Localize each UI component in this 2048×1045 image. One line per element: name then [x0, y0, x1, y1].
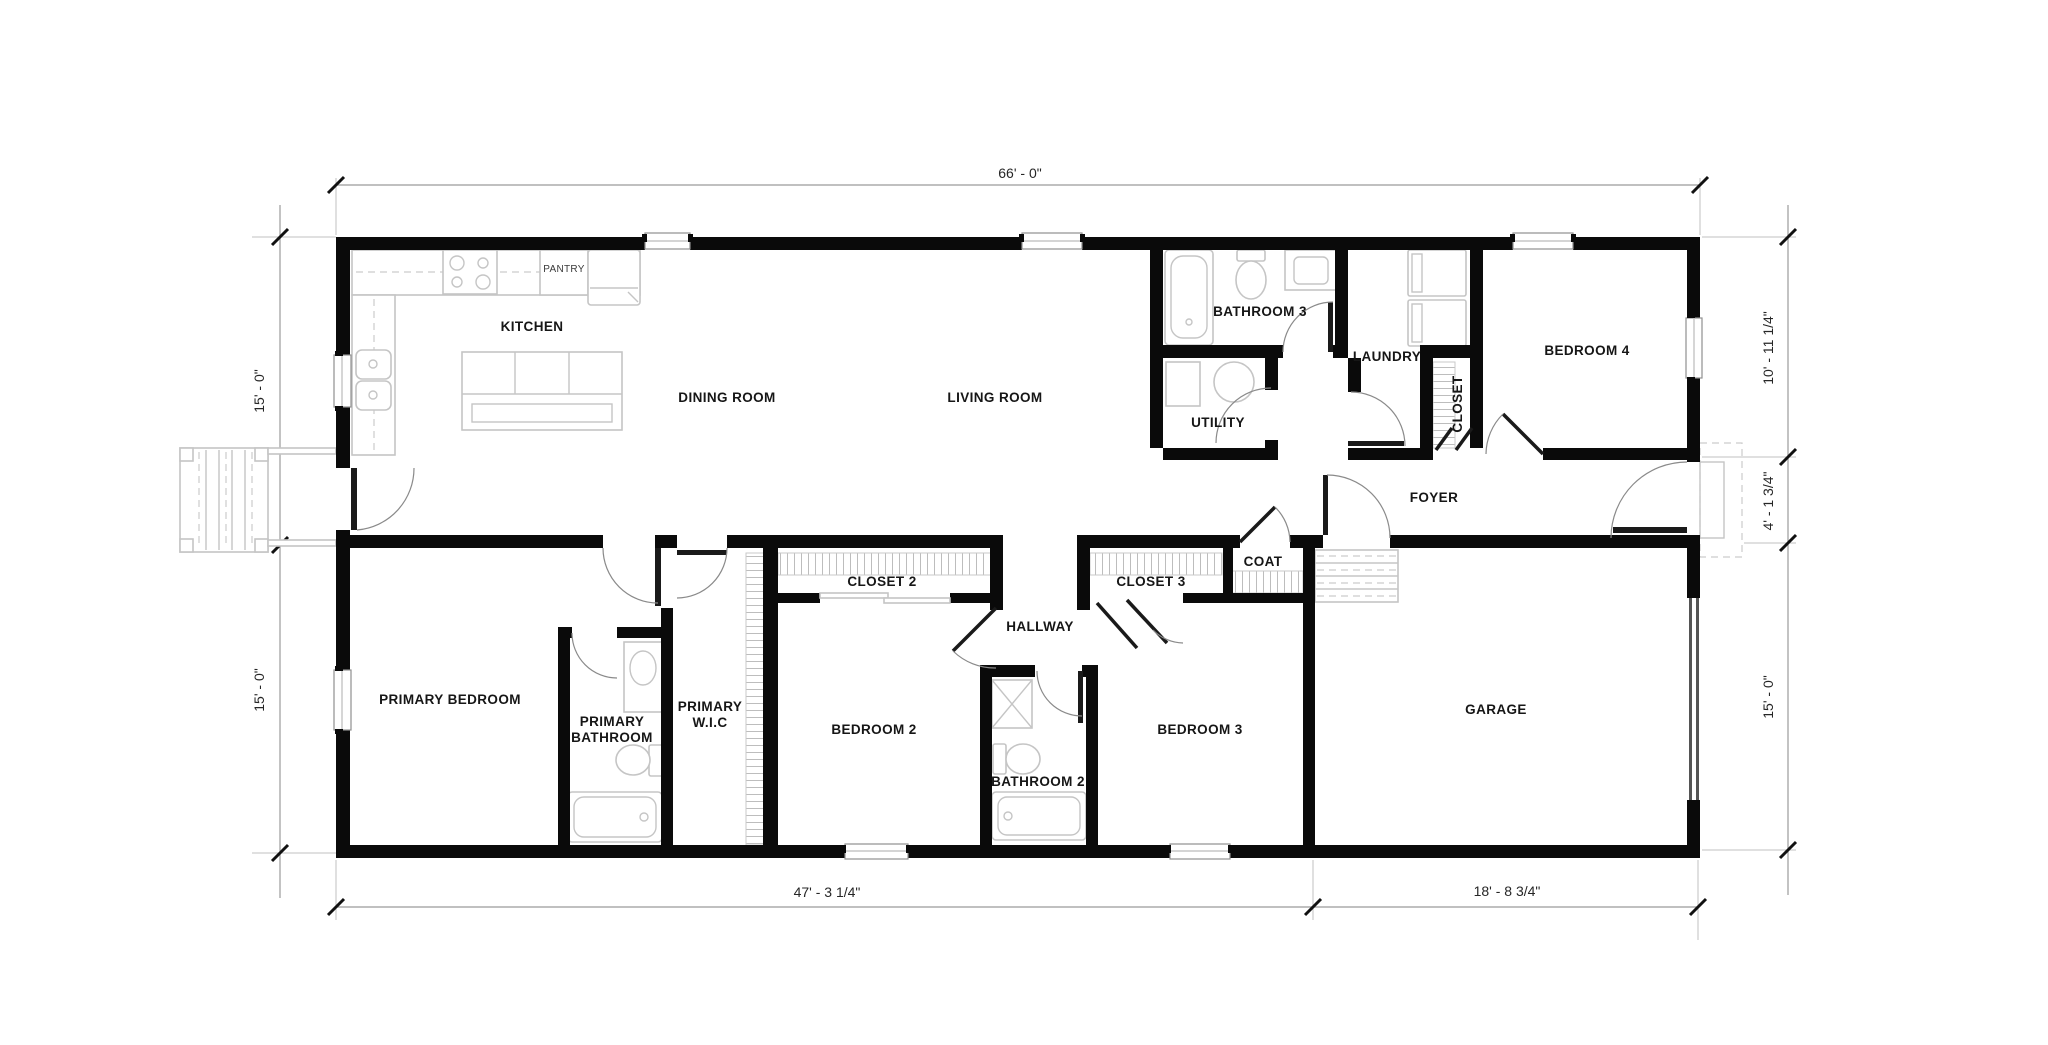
bathroom3-vanity-icon: [1285, 250, 1337, 290]
room-label-primary-wic-1: PRIMARY: [678, 699, 743, 714]
wall-pbath-top-right: [617, 627, 668, 638]
room-label-bedroom2: BEDROOM 2: [831, 722, 916, 737]
window-bedroom4-top: [1510, 233, 1576, 249]
room-label-primary-bathroom-2: BATHROOM: [571, 730, 653, 745]
dim-bottom-left: 47' - 3 1/4": [794, 884, 861, 900]
primary-bathroom-door: [572, 633, 617, 678]
closet3-doors: [1097, 600, 1183, 648]
garage-steps: [1315, 550, 1398, 602]
wall-bath2-right: [1086, 665, 1098, 845]
washer-dryer-icon: [1408, 250, 1466, 346]
wall-garage-left: [1303, 535, 1315, 858]
room-label-pantry: PANTRY: [543, 264, 584, 275]
primary-tub-icon: [568, 792, 662, 842]
bedroom4-door: [1486, 414, 1543, 454]
wall-utility-right: [1265, 358, 1278, 390]
primary-toilet-icon: [616, 745, 664, 776]
coat-shelving: [1232, 571, 1303, 593]
bathroom3-toilet-icon: [1236, 250, 1266, 299]
deck-stairs: [180, 448, 336, 552]
outer-wall-top: [336, 237, 1700, 250]
dim-bottom-right: 18' - 8 3/4": [1474, 883, 1541, 899]
primary-vanity-icon: [624, 642, 663, 712]
room-label-laundry: LAUNDRY: [1353, 349, 1421, 364]
wall-coat-left: [1223, 535, 1233, 603]
primary-bedroom-door: [603, 548, 661, 606]
wall-closet-left: [1420, 358, 1433, 448]
front-door: [1611, 462, 1687, 538]
room-label-closet2: CLOSET 2: [847, 574, 916, 589]
wall-closet-top: [1420, 345, 1483, 358]
window-kitchen-left: [334, 351, 351, 411]
room-label-dining-room: DINING ROOM: [678, 390, 775, 405]
wall-bath3-laundry: [1335, 250, 1348, 345]
room-label-primary-bedroom: PRIMARY BEDROOM: [379, 692, 521, 707]
wall-utility-right-stub: [1265, 440, 1278, 448]
room-label-living-room: LIVING ROOM: [947, 390, 1042, 405]
wall-closet2-right: [990, 535, 1003, 610]
floor-plan-page: 66' - 0" 15' - 0" 15' - 0" 10' - 11 1/4"…: [0, 0, 2048, 1045]
bathroom2-toilet-icon: [993, 744, 1040, 774]
garage-door: [1689, 598, 1699, 800]
room-label-hallway: HALLWAY: [1006, 619, 1074, 634]
dim-left-lower: 15' - 0": [251, 668, 267, 711]
room-label-kitchen: KITCHEN: [501, 319, 564, 334]
stove-icon: [443, 250, 497, 294]
room-label-closet: CLOSET: [1450, 375, 1465, 433]
room-label-primary-wic-2: W.I.C: [693, 715, 728, 730]
wall-closet2-bottom-l: [778, 593, 820, 603]
dim-overall-width: 66' - 0": [998, 165, 1041, 181]
coat-door: [1240, 507, 1290, 542]
wall-wic-right: [763, 535, 778, 845]
wall-bath3-stub: [1333, 345, 1348, 358]
wall-coat-bottom: [1183, 593, 1313, 603]
room-label-garage: GARAGE: [1465, 702, 1527, 717]
room-label-bedroom4: BEDROOM 4: [1544, 343, 1629, 358]
closet2-shelving: [778, 553, 992, 575]
front-stoop: [1700, 443, 1742, 557]
wall-wic-left: [661, 608, 673, 845]
floor-plan-drawing: 66' - 0" 15' - 0" 15' - 0" 10' - 11 1/4"…: [0, 0, 2048, 1045]
room-label-bathroom3: BATHROOM 3: [1213, 304, 1307, 319]
room-label-closet3: CLOSET 3: [1116, 574, 1185, 589]
room-label-foyer: FOYER: [1410, 490, 1459, 505]
dim-right-upper: 10' - 11 1/4": [1760, 311, 1776, 385]
room-label-coat: COAT: [1244, 554, 1283, 569]
window-dining-top: [642, 233, 693, 249]
wall-foyer-top: [1163, 448, 1687, 460]
room-label-bedroom3: BEDROOM 3: [1157, 722, 1242, 737]
outer-wall-left: [336, 237, 350, 858]
wall-closet3-left: [1077, 535, 1090, 610]
bathroom3-tub-icon: [1165, 250, 1213, 345]
window-primary-bedroom-left: [334, 666, 351, 734]
garage-entry-door: [1323, 475, 1390, 538]
dim-right-lower: 15' - 0": [1760, 675, 1776, 718]
kitchen-island: [462, 352, 622, 430]
room-label-bathroom2: BATHROOM 2: [991, 774, 1085, 789]
wall-pbath-left: [558, 627, 570, 845]
bathroom2-door: [1037, 671, 1083, 723]
window-bedroom2-bottom: [841, 844, 911, 859]
window-living-top: [1019, 233, 1085, 249]
deck-door: [351, 468, 414, 530]
closet3-shelving: [1090, 553, 1222, 575]
bathroom2-tub-icon: [992, 792, 1086, 840]
wall-bath2-left: [980, 665, 992, 845]
wall-middle: [350, 535, 1700, 548]
wall-living-divider: [1150, 250, 1163, 448]
window-bedroom4-right: [1686, 313, 1702, 382]
laundry-door: [1348, 392, 1405, 446]
refrigerator-icon: [588, 250, 640, 305]
bathroom2-shower-icon: [992, 680, 1032, 728]
room-label-utility: UTILITY: [1191, 415, 1245, 430]
wall-bath3-utility: [1163, 345, 1283, 358]
closet2-sliding-door: [820, 593, 950, 603]
room-label-primary-bathroom-1: PRIMARY: [580, 714, 645, 729]
window-bedroom3-bottom: [1166, 844, 1233, 859]
bedroom2-door: [953, 608, 996, 668]
wic-door: [677, 548, 727, 598]
dim-right-middle: 4' - 1 3/4": [1760, 471, 1776, 530]
outer-wall-bottom: [336, 845, 1700, 858]
dim-left-upper: 15' - 0": [251, 369, 267, 412]
water-heater-icon: [1166, 362, 1254, 406]
